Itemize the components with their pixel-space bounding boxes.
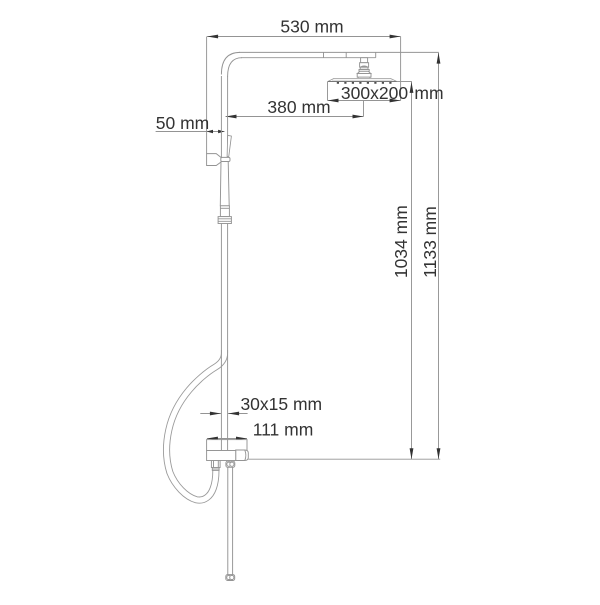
svg-text:1034 mm: 1034 mm xyxy=(391,205,411,278)
svg-text:300x200: 300x200 xyxy=(341,83,408,103)
svg-text:1133 mm: 1133 mm xyxy=(420,206,440,278)
svg-text:mm: mm xyxy=(414,83,443,103)
svg-text:30x15 mm: 30x15 mm xyxy=(240,394,322,414)
svg-text:111 mm: 111 mm xyxy=(253,420,314,440)
svg-text:380 mm: 380 mm xyxy=(267,97,330,117)
svg-text:50 mm: 50 mm xyxy=(156,113,209,133)
svg-text:530 mm: 530 mm xyxy=(280,17,343,37)
